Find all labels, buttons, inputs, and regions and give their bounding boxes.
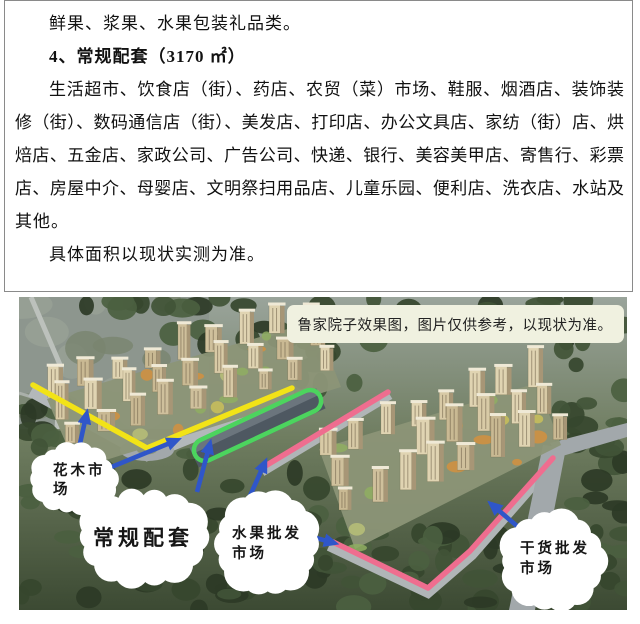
callout-ganhuo-label: 干货批发 <box>520 539 590 557</box>
callout-shuiguo-label2: 市场 <box>232 544 267 562</box>
intro-line: 鲜果、浆果、水果包装礼品类。 <box>15 7 624 40</box>
image-caption: 鲁家院子效果图，图片仅供参考，以现状为准。 <box>298 317 613 334</box>
aerial-photo-svg: 花木市 场 常规配套 水果批发 市场 干货批发 市场 鲁家院子效果图，图片仅供参… <box>19 297 627 610</box>
doc-text-box: 鲜果、浆果、水果包装礼品类。 4、常规配套（3170 ㎡） 生活超市、饮食店（街… <box>4 0 633 292</box>
callout-huamu-label2: 场 <box>53 481 71 498</box>
body-line: 店、房屋中介、母婴店、文明祭扫用品店、儿童乐园、便利店、洗衣店、水站及 <box>15 172 624 205</box>
rendering-image: 花木市 场 常规配套 水果批发 市场 干货批发 市场 鲁家院子效果图，图片仅供参… <box>19 297 627 610</box>
callout-changgui-label: 常规配套 <box>93 526 193 550</box>
body-line: 焙店、五金店、家政公司、广告公司、快递、银行、美容美甲店、寄售行、彩票 <box>15 139 624 172</box>
section-heading: 4、常规配套（3170 ㎡） <box>15 40 624 73</box>
body-line: 生活超市、饮食店（街）、药店、农贸（菜）市场、鞋服、烟酒店、装饰装 <box>15 73 624 106</box>
page: { "doc": { "intro": "鲜果、浆果、水果包装礼品类。", "h… <box>0 0 640 624</box>
callout-ganhuo-label2: 市场 <box>520 559 555 577</box>
callout-huamu-label: 花木市 <box>53 461 106 479</box>
body-line: 修（街）、数码通信店（街）、美发店、打印店、办公文具店、家纺（街）店、烘 <box>15 106 624 139</box>
body-line-last: 其他。 <box>15 205 624 238</box>
note-line: 具体面积以现状实测为准。 <box>15 238 624 271</box>
callout-shuiguo-label: 水果批发 <box>232 524 302 542</box>
